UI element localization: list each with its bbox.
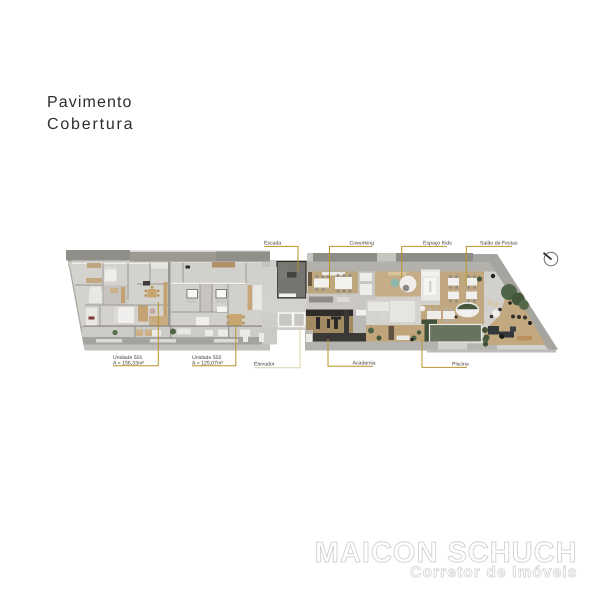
svg-text:Escada: Escada — [264, 241, 281, 247]
svg-text:Corretor de Imóveis: Corretor de Imóveis — [410, 564, 577, 581]
svg-text:Academia: Academia — [353, 361, 376, 367]
svg-text:Piscina: Piscina — [452, 362, 469, 368]
svg-text:Coworking: Coworking — [350, 241, 375, 247]
svg-text:A = 125,07m²: A = 125,07m² — [192, 361, 223, 367]
svg-text:A = 156,33m²: A = 156,33m² — [113, 361, 144, 367]
svg-text:Espaço Kids: Espaço Kids — [423, 241, 452, 247]
svg-text:Elevador: Elevador — [254, 362, 275, 368]
svg-text:Pavimento: Pavimento — [47, 94, 133, 111]
svg-text:Salão de Festas: Salão de Festas — [480, 241, 518, 247]
svg-text:Cobertura: Cobertura — [47, 116, 134, 133]
